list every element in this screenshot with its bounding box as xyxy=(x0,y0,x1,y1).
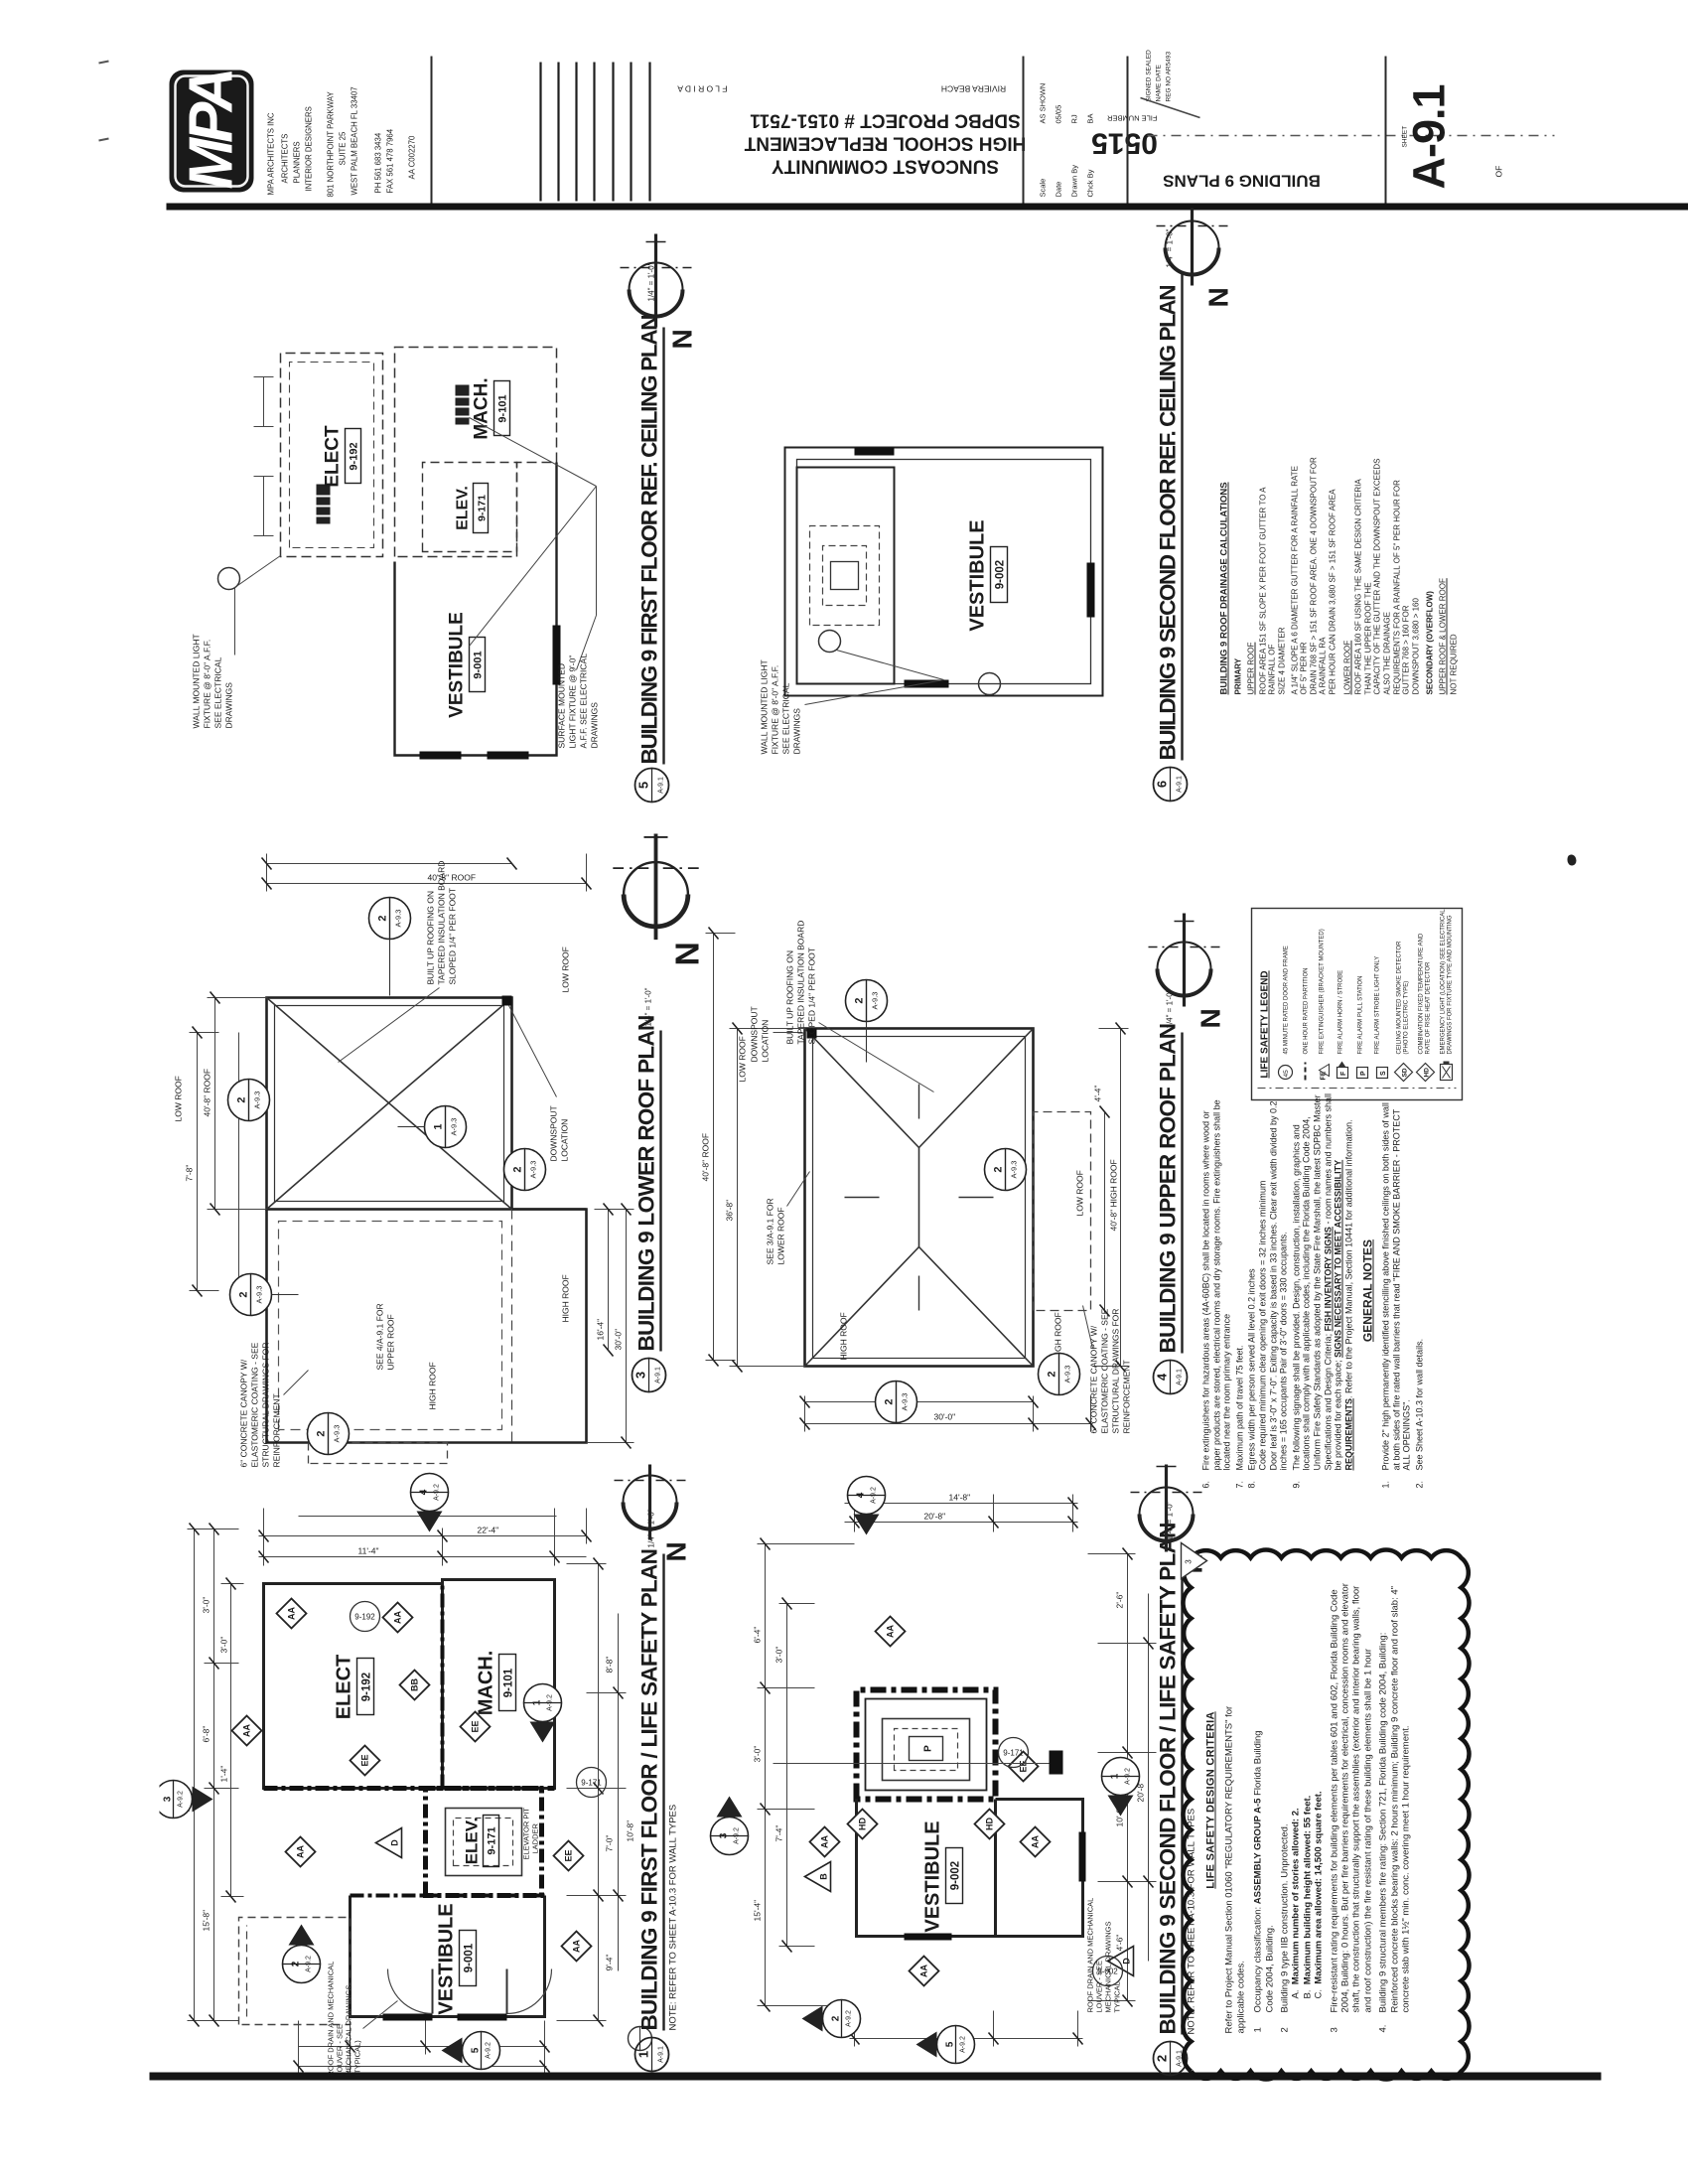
svg-text:LOWER ROOF: LOWER ROOF xyxy=(775,1207,785,1264)
svg-text:D: D xyxy=(389,1838,399,1845)
svg-text:AA: AA xyxy=(241,1723,251,1736)
svg-text:15'-8": 15'-8" xyxy=(201,1909,211,1931)
svg-text:HIGH ROOF: HIGH ROOF xyxy=(427,1362,437,1409)
svg-text:LIGHT FIXTURE @ 9'-0": LIGHT FIXTURE @ 9'-0" xyxy=(567,655,577,748)
svg-text:40'-8" HIGH ROOF: 40'-8" HIGH ROOF xyxy=(1108,1159,1118,1231)
svg-text:FE: FE xyxy=(1320,1071,1327,1080)
svg-text:BUILDING 9 LOWER ROOF PLAN: BUILDING 9 LOWER ROOF PLAN xyxy=(633,1015,658,1351)
svg-text:3'-0": 3'-0" xyxy=(218,1636,228,1653)
svg-text:4: 4 xyxy=(855,1492,866,1498)
svg-text:A-9.3: A-9.3 xyxy=(252,1091,261,1108)
svg-text:BUILT UP ROOFING ON: BUILT UP ROOFING ON xyxy=(425,891,435,984)
svg-text:3'-0": 3'-0" xyxy=(201,1596,211,1613)
svg-text:LOW ROOF: LOW ROOF xyxy=(737,1036,747,1082)
svg-text:AA: AA xyxy=(286,1606,296,1619)
svg-text:BUILDING 9 SECOND FLOOR / LIFE: BUILDING 9 SECOND FLOOR / LIFE SAFETY PL… xyxy=(1155,1523,1180,2034)
svg-text:A-9.2: A-9.2 xyxy=(733,1827,740,1844)
svg-text:P: P xyxy=(1360,1071,1367,1076)
svg-text:DOWNSPOUT: DOWNSPOUT xyxy=(749,1006,759,1062)
svg-text:11'-4": 11'-4" xyxy=(357,1545,378,1555)
svg-text:AA: AA xyxy=(1030,1834,1040,1847)
svg-text:REG NO AR5493: REG NO AR5493 xyxy=(1165,51,1172,101)
svg-text:FIRE ALARM HORN / STROBE: FIRE ALARM HORN / STROBE xyxy=(1337,969,1343,1054)
svg-text:2: 2 xyxy=(511,1166,523,1172)
svg-text:ELEV.: ELEV. xyxy=(462,1817,481,1864)
svg-text:9-101: 9-101 xyxy=(502,1668,514,1697)
svg-text:6: 6 xyxy=(1154,780,1169,787)
svg-text:A-9.2: A-9.2 xyxy=(870,1487,877,1504)
svg-text:MPA: MPA xyxy=(177,71,245,189)
svg-text:ELECT: ELECT xyxy=(322,424,343,487)
svg-text:A-9.1: A-9.1 xyxy=(654,1367,661,1383)
svg-text:FAX 561 478 7964: FAX 561 478 7964 xyxy=(385,128,394,193)
svg-text:9-192: 9-192 xyxy=(360,1672,372,1700)
svg-text:6'-8": 6'-8" xyxy=(201,1725,211,1742)
svg-text:9-001: 9-001 xyxy=(463,1943,475,1972)
svg-text:WALL MOUNTED LIGHT: WALL MOUNTED LIGHT xyxy=(759,659,769,754)
svg-text:HIGH SCHOOL REPLACEMENT: HIGH SCHOOL REPLACEMENT xyxy=(744,132,1026,153)
svg-text:SEE ELECTRICAL: SEE ELECTRICAL xyxy=(780,682,790,754)
svg-text:4'-6": 4'-6" xyxy=(1114,1934,1124,1951)
svg-text:LOUVER - SEE: LOUVER - SEE xyxy=(335,2023,344,2076)
svg-text:45 MINUTE RATED DOOR AND FRAME: 45 MINUTE RATED DOOR AND FRAME xyxy=(1283,946,1289,1054)
svg-text:NAME DATE: NAME DATE xyxy=(1155,64,1162,101)
svg-text:A-9.3: A-9.3 xyxy=(393,909,402,927)
svg-text:5: 5 xyxy=(470,2047,481,2053)
svg-text:A-9.3: A-9.3 xyxy=(900,1392,909,1410)
svg-text:TAPERED INSULATION BOARD: TAPERED INSULATION BOARD xyxy=(795,920,805,1044)
svg-text:9-002: 9-002 xyxy=(994,559,1006,588)
svg-text:30'-0": 30'-0" xyxy=(933,1411,955,1421)
svg-text:4: 4 xyxy=(418,1489,429,1495)
svg-text:AA: AA xyxy=(392,1610,402,1623)
svg-text:4: 4 xyxy=(1154,1373,1169,1381)
svg-text:LOW ROOF: LOW ROOF xyxy=(1074,1170,1084,1216)
svg-text:6" CONCRETE CANOPY W/: 6" CONCRETE CANOPY W/ xyxy=(1088,1325,1098,1433)
svg-text:3: 3 xyxy=(1184,1558,1193,1563)
svg-text:2: 2 xyxy=(853,997,865,1003)
svg-text:10'-8": 10'-8" xyxy=(625,1820,634,1841)
svg-text:FIRE ALARM PULL STATION: FIRE ALARM PULL STATION xyxy=(1357,975,1363,1054)
svg-text:MACH.: MACH. xyxy=(471,377,492,439)
svg-text:9-002: 9-002 xyxy=(949,1860,961,1889)
svg-text:RJ: RJ xyxy=(1069,114,1078,123)
svg-text:STRUCTURAL DRAWINGS FOR: STRUCTURAL DRAWINGS FOR xyxy=(260,1342,270,1467)
svg-text:PH 561 683 3434: PH 561 683 3434 xyxy=(373,132,382,193)
svg-text:22'-4": 22'-4" xyxy=(477,1525,498,1534)
svg-text:A-9.2: A-9.2 xyxy=(485,2042,492,2059)
svg-text:A-9.2: A-9.2 xyxy=(1124,1768,1131,1785)
svg-text:40'-8" ROOF: 40'-8" ROOF xyxy=(700,1132,710,1181)
svg-text:14'-8": 14'-8" xyxy=(948,1492,970,1502)
svg-text:LOCATION: LOCATION xyxy=(760,1019,770,1062)
svg-text:BA: BA xyxy=(1085,113,1094,123)
svg-text:BUILDING 9 UPPER ROOF PLAN: BUILDING 9 UPPER ROOF PLAN xyxy=(1155,1023,1180,1353)
svg-text:9'-4": 9'-4" xyxy=(604,1954,614,1970)
svg-text:D: D xyxy=(1121,1957,1131,1964)
svg-text:A-9.1: A-9.1 xyxy=(657,2046,664,2063)
svg-text:9-192: 9-192 xyxy=(348,442,359,470)
svg-text:20'-8": 20'-8" xyxy=(923,1511,945,1521)
svg-text:05/05: 05/05 xyxy=(1054,104,1062,123)
svg-text:5: 5 xyxy=(944,2041,955,2047)
svg-text:ELECT: ELECT xyxy=(333,1654,354,1719)
svg-text:OF: OF xyxy=(1493,165,1503,177)
svg-text:2: 2 xyxy=(830,2015,841,2021)
svg-text:SUITE 25: SUITE 25 xyxy=(338,131,347,165)
svg-text:SLOPED 1/4" PER FOOT: SLOPED 1/4" PER FOOT xyxy=(806,947,816,1045)
svg-text:2: 2 xyxy=(235,1096,247,1102)
svg-text:EMERGENCY LIGHT (LOCATION) SEE: EMERGENCY LIGHT (LOCATION) SEE ELECTRICA… xyxy=(1440,908,1446,1054)
svg-text:DRAWINGS: DRAWINGS xyxy=(223,681,233,728)
svg-text:COMBINATION FIXED TEMPERATURE: COMBINATION FIXED TEMPERATURE AND xyxy=(1418,933,1424,1054)
svg-text:A-9.1: A-9.1 xyxy=(1176,776,1183,793)
svg-text:AA: AA xyxy=(571,1939,581,1952)
svg-text:FIRE EXTINGUISHER (BRACKET MOU: FIRE EXTINGUISHER (BRACKET MOUNTED) xyxy=(1319,929,1325,1054)
svg-text:BUILT UP ROOFING ON: BUILT UP ROOFING ON xyxy=(784,950,794,1044)
svg-text:LOCATION: LOCATION xyxy=(559,1118,569,1161)
svg-text:2'-6": 2'-6" xyxy=(1114,1591,1124,1608)
svg-text:2: 2 xyxy=(883,1398,895,1404)
svg-text:NOTE: REFER TO SHEET A-10.3 FO: NOTE: REFER TO SHEET A-10.3 FOR WALL TYP… xyxy=(667,1804,678,2030)
svg-text:FILE NUMBER: FILE NUMBER xyxy=(1106,113,1157,122)
svg-text:6" CONCRETE CANOPY W/: 6" CONCRETE CANOPY W/ xyxy=(238,1359,248,1467)
svg-text:AS SHOWN: AS SHOWN xyxy=(1038,82,1047,123)
svg-text:1: 1 xyxy=(432,1123,444,1129)
svg-text:EE: EE xyxy=(563,1849,573,1861)
svg-text:4'-4": 4'-4" xyxy=(1092,1085,1102,1101)
svg-text:F L O R I D A: F L O R I D A xyxy=(676,83,727,93)
svg-text:A-9.1: A-9.1 xyxy=(657,777,664,794)
svg-text:P: P xyxy=(922,1744,933,1751)
svg-text:A-9.2: A-9.2 xyxy=(177,1791,184,1808)
svg-text:ARCHITECTS: ARCHITECTS xyxy=(280,133,289,183)
svg-text:9-192: 9-192 xyxy=(354,1612,375,1621)
svg-text:HD: HD xyxy=(984,1817,994,1829)
svg-text:801 NORTHPOINT PARKWAY: 801 NORTHPOINT PARKWAY xyxy=(326,90,335,197)
svg-text:ONE HOUR RATED PARTITION: ONE HOUR RATED PARTITION xyxy=(1303,967,1309,1054)
svg-text:MPA ARCHITECTS INC: MPA ARCHITECTS INC xyxy=(266,112,275,195)
svg-text:SURFACE MOUNTED: SURFACE MOUNTED xyxy=(556,663,566,748)
svg-text:Date: Date xyxy=(1054,181,1062,197)
svg-text:2: 2 xyxy=(315,1430,327,1436)
svg-text:7'-0": 7'-0" xyxy=(604,1834,614,1851)
svg-text:7'-8": 7'-8" xyxy=(184,1164,194,1181)
svg-text:36'-8": 36'-8" xyxy=(724,1199,734,1221)
svg-text:AA: AA xyxy=(295,1844,305,1857)
svg-text:RIVIERA BEACH: RIVIERA BEACH xyxy=(940,83,1005,93)
svg-text:VESTIBULE: VESTIBULE xyxy=(966,519,988,631)
svg-text:SUNCOAST COMMUNITY: SUNCOAST COMMUNITY xyxy=(771,155,998,176)
svg-text:3: 3 xyxy=(162,1796,173,1802)
svg-text:A-9.3: A-9.3 xyxy=(449,1117,458,1135)
svg-text:2: 2 xyxy=(376,915,388,921)
svg-text:SLOPED 1/4" PER FOOT: SLOPED 1/4" PER FOOT xyxy=(447,888,457,985)
svg-text:2: 2 xyxy=(992,1166,1004,1172)
svg-text:TYPICAL: TYPICAL xyxy=(1112,1981,1121,2012)
svg-text:2: 2 xyxy=(290,1961,301,1966)
svg-text:LIFE SAFETY LEGEND: LIFE SAFETY LEGEND xyxy=(1259,970,1270,1078)
svg-text:WEST PALM BEACH FL 33407: WEST PALM BEACH FL 33407 xyxy=(350,86,358,195)
svg-text:9-171: 9-171 xyxy=(486,1826,497,1854)
svg-text:AA: AA xyxy=(885,1624,895,1637)
svg-text:SDPBC PROJECT # 0151-7511: SDPBC PROJECT # 0151-7511 xyxy=(749,109,1020,130)
svg-text:6'-4": 6'-4" xyxy=(752,1626,762,1643)
svg-text:A-9.2: A-9.2 xyxy=(305,1956,312,1972)
svg-text:SEE ELECTRICAL: SEE ELECTRICAL xyxy=(212,656,222,728)
svg-text:A-9.1: A-9.1 xyxy=(1176,1369,1183,1385)
svg-text:16'-4": 16'-4" xyxy=(595,1318,605,1340)
svg-text:F: F xyxy=(1340,1071,1347,1076)
svg-text:VESTIBULE: VESTIBULE xyxy=(921,1820,943,1932)
svg-text:Drawn By: Drawn By xyxy=(1069,164,1078,197)
svg-text:A-9.3: A-9.3 xyxy=(1062,1365,1071,1383)
svg-text:CEILING MOUNTED SMOKE DETECTOR: CEILING MOUNTED SMOKE DETECTOR xyxy=(1396,940,1402,1054)
svg-text:LOW ROOF: LOW ROOF xyxy=(560,946,570,992)
svg-text:BUILDING 9 SECOND FLOOR REF. C: BUILDING 9 SECOND FLOOR REF. CEILING PLA… xyxy=(1155,285,1180,760)
svg-text:LOUVER - SEE: LOUVER - SEE xyxy=(1094,1960,1103,2012)
svg-text:15'-4": 15'-4" xyxy=(752,1899,762,1921)
svg-text:FIXTURE @ 8'-0" A.F.F.: FIXTURE @ 8'-0" A.F.F. xyxy=(770,664,779,754)
svg-text:FIRE ALARM STROBE LIGHT ONLY: FIRE ALARM STROBE LIGHT ONLY xyxy=(1374,955,1380,1054)
svg-text:SD: SD xyxy=(1401,1068,1408,1077)
svg-text:30'-0": 30'-0" xyxy=(613,1328,623,1350)
svg-text:A.F.F. SEE ELECTRICAL: A.F.F. SEE ELECTRICAL xyxy=(578,653,588,748)
svg-text:A-9.3: A-9.3 xyxy=(528,1160,537,1178)
svg-text:TAPERED INSULATION BOARD: TAPERED INSULATION BOARD xyxy=(436,860,446,984)
svg-text:SIGNED SEALED: SIGNED SEALED xyxy=(1145,49,1152,101)
svg-text:1: 1 xyxy=(531,1699,542,1705)
svg-text:1/4" = 1'-0": 1/4" = 1'-0" xyxy=(643,987,652,1026)
svg-text:7'-4": 7'-4" xyxy=(774,1824,783,1841)
svg-text:8'-8": 8'-8" xyxy=(604,1656,614,1673)
svg-text:VESTIBULE: VESTIBULE xyxy=(435,1903,457,2014)
svg-text:A-9.3: A-9.3 xyxy=(254,1285,263,1303)
svg-text:9-101: 9-101 xyxy=(496,394,508,422)
svg-text:MACH.: MACH. xyxy=(475,1650,496,1715)
svg-text:Chck By: Chck By xyxy=(1085,169,1094,197)
svg-text:9-171: 9-171 xyxy=(476,494,488,520)
svg-text:HIGH ROOF: HIGH ROOF xyxy=(560,1274,570,1322)
svg-text:INTERIOR DESIGNERS: INTERIOR DESIGNERS xyxy=(304,106,313,191)
svg-text:AA C002270: AA C002270 xyxy=(407,135,416,179)
svg-text:DRAWINGS FOR FIXTURE TYPE AND: DRAWINGS FOR FIXTURE TYPE AND MOUNTING xyxy=(1447,915,1453,1054)
svg-text:2: 2 xyxy=(1154,2054,1169,2061)
svg-text:DOWNSPOUT: DOWNSPOUT xyxy=(548,1105,558,1161)
svg-text:PLANNERS: PLANNERS xyxy=(292,141,301,183)
svg-text:1'-4": 1'-4" xyxy=(218,1765,228,1782)
svg-text:(PHOTO ELECTRIC TYPE): (PHOTO ELECTRIC TYPE) xyxy=(1403,980,1409,1054)
svg-text:A-9.2: A-9.2 xyxy=(546,1694,553,1711)
svg-text:3'-0": 3'-0" xyxy=(774,1646,783,1663)
svg-text:MECHANICAL DRAWINGS: MECHANICAL DRAWINGS xyxy=(1103,1921,1112,2012)
svg-text:A-9.2: A-9.2 xyxy=(845,2010,852,2027)
svg-text:DRAWINGS: DRAWINGS xyxy=(589,701,599,748)
svg-text:BUILDING 9 PLANS: BUILDING 9 PLANS xyxy=(1163,171,1321,190)
svg-text:3: 3 xyxy=(718,1832,729,1838)
svg-text:A-9.1: A-9.1 xyxy=(1403,84,1454,189)
svg-text:40'-8" ROOF: 40'-8" ROOF xyxy=(427,872,476,882)
svg-text:MECHANICAL DRAWINGS: MECHANICAL DRAWINGS xyxy=(344,1984,352,2076)
svg-text:2: 2 xyxy=(237,1291,249,1297)
svg-text:BB: BB xyxy=(409,1677,419,1690)
svg-text:B: B xyxy=(818,1872,828,1879)
svg-text:REINFORCEMENT: REINFORCEMENT xyxy=(1121,1360,1131,1433)
svg-text:A-9.3: A-9.3 xyxy=(870,991,879,1009)
svg-text:FIXTURE @ 8'-0" A.F.F.: FIXTURE @ 8'-0" A.F.F. xyxy=(202,639,211,728)
svg-text:Scale: Scale xyxy=(1038,178,1047,197)
svg-text:BUILDING 9 FIRST FLOOR REF. CE: BUILDING 9 FIRST FLOOR REF. CEILING PLAN xyxy=(636,315,661,764)
svg-text:S: S xyxy=(1380,1071,1387,1076)
svg-text:(TYPICAL): (TYPICAL) xyxy=(352,2039,361,2076)
svg-text:EE: EE xyxy=(359,1754,369,1766)
svg-text:LOW ROOF: LOW ROOF xyxy=(173,1076,183,1121)
svg-text:EE: EE xyxy=(470,1720,480,1732)
svg-text:9-171: 9-171 xyxy=(581,1778,602,1787)
svg-text:ELEVATOR PIT: ELEVATOR PIT xyxy=(521,1807,530,1859)
svg-text:HD: HD xyxy=(857,1817,867,1829)
svg-text:0515: 0515 xyxy=(1091,126,1158,159)
svg-text:ROOF DRAIN AND MECHANICAL: ROOF DRAIN AND MECHANICAL xyxy=(326,1961,335,2076)
svg-text:DRAWINGS: DRAWINGS xyxy=(791,707,801,754)
svg-text:45: 45 xyxy=(1283,1069,1290,1077)
svg-text:3: 3 xyxy=(633,1371,647,1378)
svg-text:A-9.2: A-9.2 xyxy=(959,2036,966,2053)
svg-text:ELASTOMERIC COATING - SEE: ELASTOMERIC COATING - SEE xyxy=(1099,1308,1109,1433)
svg-text:LADDER: LADDER xyxy=(530,1822,539,1853)
svg-text:AA: AA xyxy=(918,1964,928,1976)
svg-text:ELEV.: ELEV. xyxy=(454,486,471,530)
svg-text:REINFORCEMENT: REINFORCEMENT xyxy=(271,1393,281,1467)
svg-text:WALL MOUNTED LIGHT: WALL MOUNTED LIGHT xyxy=(191,634,201,728)
svg-text:2: 2 xyxy=(1046,1371,1057,1377)
svg-text:40'-8" ROOF: 40'-8" ROOF xyxy=(202,1068,211,1116)
svg-text:1: 1 xyxy=(1109,1773,1120,1779)
svg-text:VESTIBULE: VESTIBULE xyxy=(446,612,467,718)
svg-text:ELASTOMERIC COATING - SEE: ELASTOMERIC COATING - SEE xyxy=(249,1342,259,1467)
svg-text:UPPER ROOF: UPPER ROOF xyxy=(385,1314,395,1370)
svg-text:1: 1 xyxy=(635,2050,650,2057)
svg-text:RATE OF RISE HEAT DETECTOR: RATE OF RISE HEAT DETECTOR xyxy=(1425,960,1431,1054)
svg-text:SEE 3/A-9.1 FOR: SEE 3/A-9.1 FOR xyxy=(765,1198,774,1264)
svg-text:9-001: 9-001 xyxy=(472,651,484,678)
svg-text:A-9.3: A-9.3 xyxy=(332,1424,341,1442)
svg-text:3'-0": 3'-0" xyxy=(752,1745,762,1762)
svg-text:5: 5 xyxy=(635,781,650,788)
svg-text:A-9.3: A-9.3 xyxy=(1009,1160,1018,1178)
svg-text:9-171: 9-171 xyxy=(1003,1748,1024,1757)
svg-text:BUILDING 9 FIRST FLOOR / LIFE: BUILDING 9 FIRST FLOOR / LIFE SAFETY PLA… xyxy=(636,1548,661,2030)
svg-text:HD: HD xyxy=(1423,1067,1430,1077)
svg-text:AA: AA xyxy=(819,1834,829,1847)
svg-text:HIGH ROOF: HIGH ROOF xyxy=(838,1312,848,1360)
svg-text:SEE 4/A-9.1 FOR: SEE 4/A-9.1 FOR xyxy=(374,1303,384,1370)
svg-text:STRUCTURAL DRAWINGS FOR: STRUCTURAL DRAWINGS FOR xyxy=(1110,1308,1120,1433)
svg-text:ROOF DRAIN AND MECHANICAL: ROOF DRAIN AND MECHANICAL xyxy=(1085,1897,1094,2012)
